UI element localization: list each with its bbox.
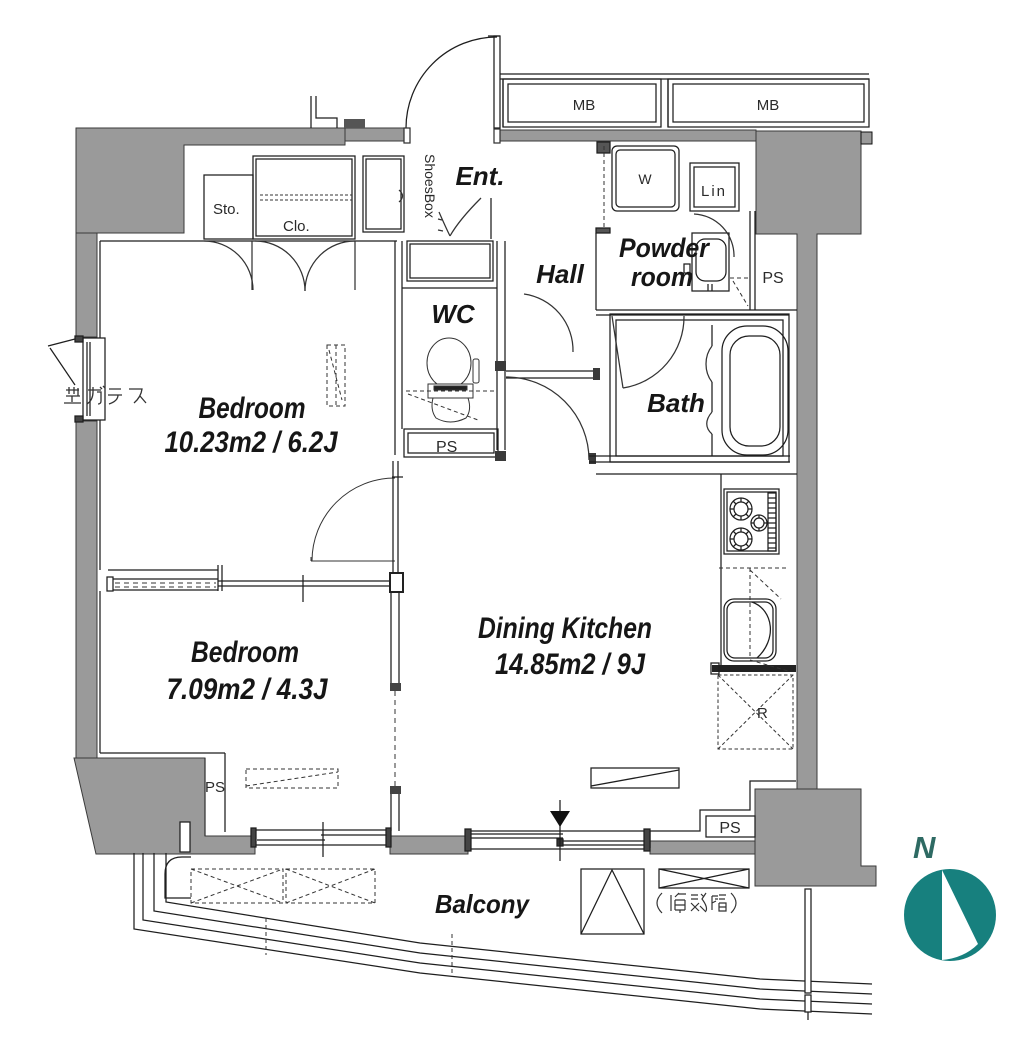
svg-text:Lin: Lin [701,183,727,200]
svg-text:Bedroom: Bedroom [199,392,306,425]
svg-text:MB: MB [757,97,780,114]
svg-text:Bath: Bath [647,388,705,418]
svg-text:PS: PS [436,439,457,456]
svg-text:Clo.: Clo. [283,218,310,235]
svg-text:W: W [638,171,652,187]
svg-text:R: R [757,705,768,722]
svg-text:Sto.: Sto. [213,201,240,218]
svg-text:Dining Kitchen: Dining Kitchen [478,612,652,645]
svg-text:Ent.: Ent. [455,161,504,191]
svg-text:room: room [631,262,693,292]
svg-text:14.85m2 / 9J: 14.85m2 / 9J [495,648,646,681]
svg-text:Powder: Powder [619,233,710,263]
svg-text:PS: PS [719,820,740,837]
svg-text:N: N [913,830,936,865]
svg-text:7.09m2 / 4.3J: 7.09m2 / 4.3J [167,673,329,706]
svg-text:WC: WC [431,299,476,329]
svg-text:Hall: Hall [536,259,584,289]
svg-text:MB: MB [573,97,596,114]
svg-text:Bedroom: Bedroom [191,636,299,669]
svg-text:PS: PS [762,270,783,287]
svg-text:10.23m2 / 6.2J: 10.23m2 / 6.2J [165,426,339,459]
svg-text:PS: PS [205,779,225,796]
svg-text:Balcony: Balcony [435,889,530,919]
svg-text:ShoesBox: ShoesBox [422,154,438,218]
